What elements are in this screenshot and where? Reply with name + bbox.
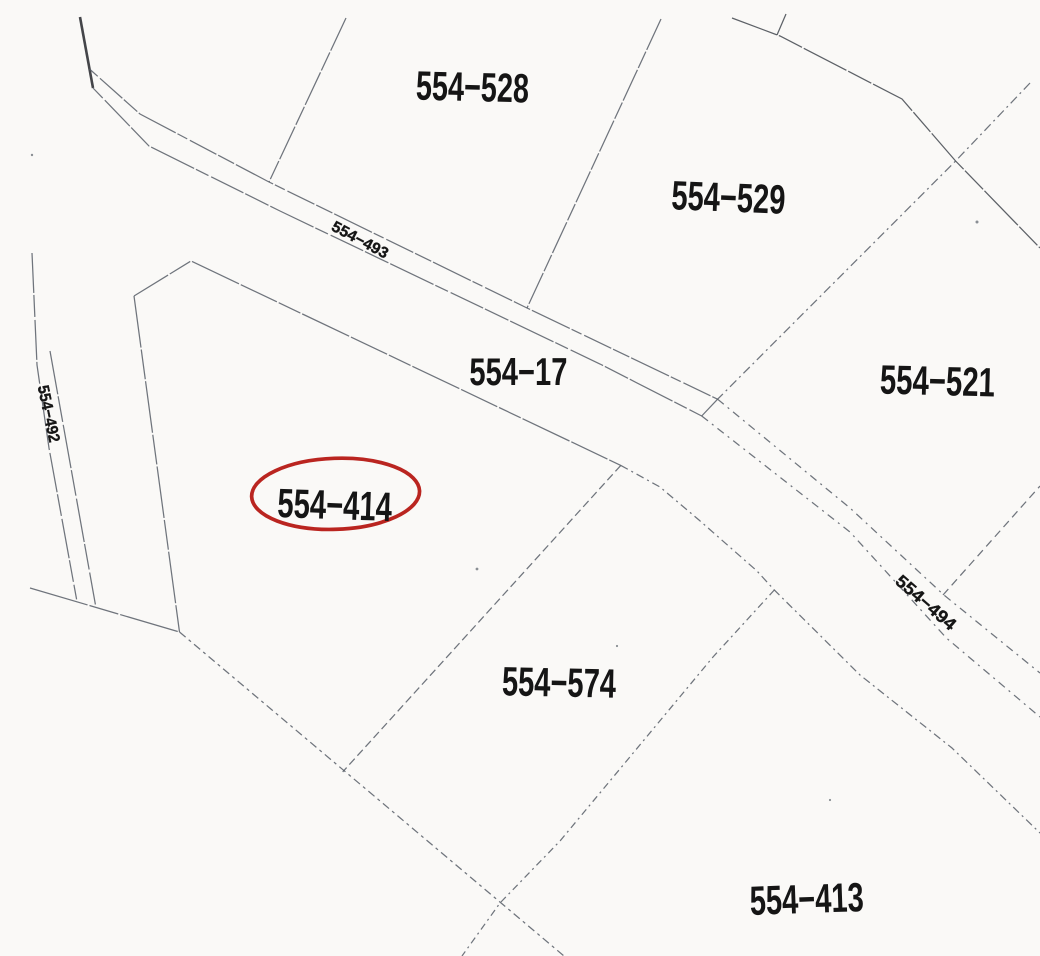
svg-text:554−17: 554−17 (469, 351, 567, 394)
svg-text:554−529: 554−529 (671, 172, 787, 223)
svg-text:554−574: 554−574 (502, 658, 617, 706)
svg-text:554−521: 554−521 (879, 357, 995, 406)
svg-text:554−413: 554−413 (749, 874, 865, 924)
svg-text:554−528: 554−528 (415, 63, 529, 112)
svg-text:554−414: 554−414 (277, 480, 393, 530)
